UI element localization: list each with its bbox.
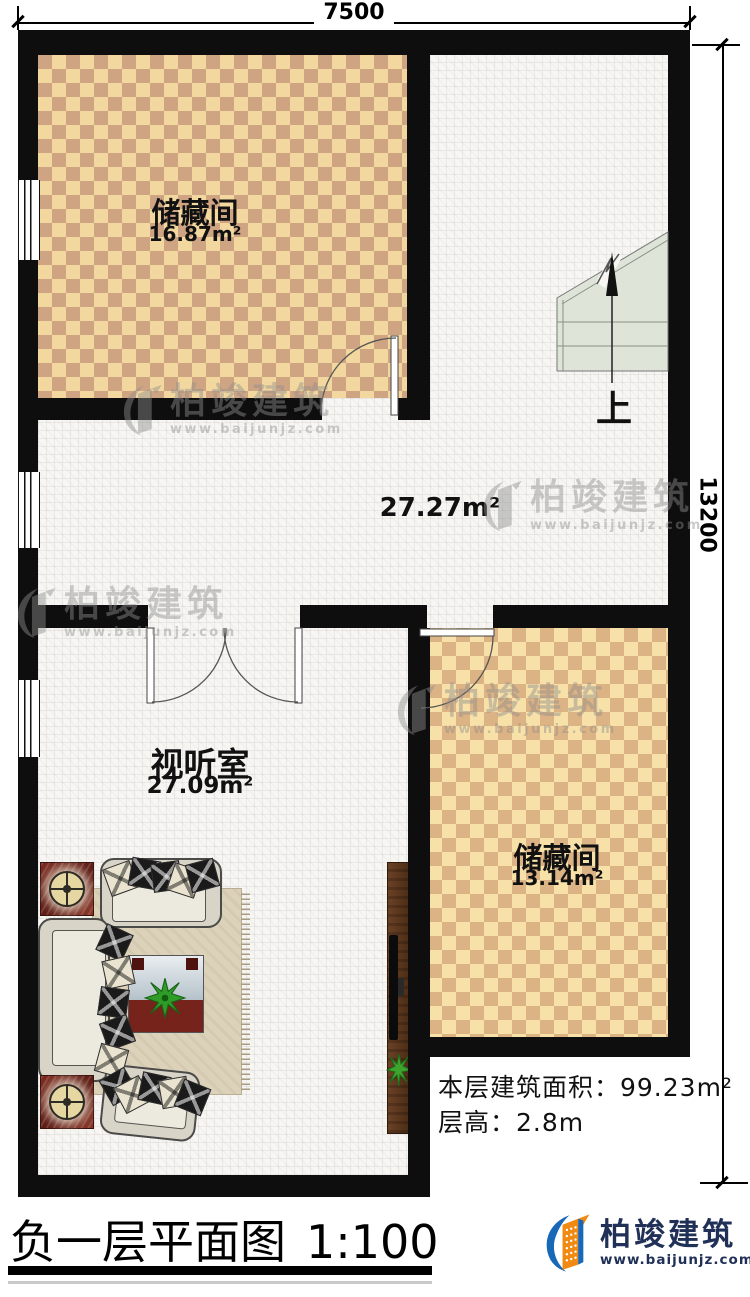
brand-url: www.baijunjz.com [600, 1252, 750, 1268]
watermark-url: www.baijunjz.com [444, 722, 617, 737]
watermark: 柏竣建筑 www.baijunjz.com [12, 585, 237, 641]
drawing-title: 负一层平面图 1:100 [10, 1206, 439, 1272]
side-table [40, 1075, 94, 1129]
title-underline [8, 1266, 432, 1275]
av-room-area: 27.09m² [105, 773, 295, 799]
table-lamp [49, 1084, 85, 1120]
rug-fringe [241, 890, 250, 1091]
drawing-scale: 1:100 [306, 1215, 439, 1269]
tv [389, 935, 398, 1040]
wall-divider [493, 605, 668, 628]
wall-storage1-bottom [398, 398, 430, 420]
drawing-title-text: 负一层平面图 [10, 1206, 286, 1272]
window [18, 180, 40, 260]
watermark: 柏竣建筑 www.baijunjz.com [118, 382, 343, 438]
storage2-area: 13.14m² [472, 866, 642, 890]
watermark-logo-icon [118, 382, 164, 438]
watermark: 柏竣建筑 www.baijunjz.com [392, 682, 617, 738]
title-underline-thin [8, 1281, 432, 1284]
side-table [40, 862, 94, 916]
brand-logo-block: 柏竣建筑 www.baijunjz.com [540, 1212, 750, 1274]
storage1-area: 16.87m² [110, 222, 280, 246]
brand-name: 柏竣建筑 [600, 1218, 750, 1252]
stairs-up-label: 上 [594, 380, 634, 432]
wall-top [18, 30, 690, 55]
watermark-name: 柏竣建筑 [64, 587, 237, 623]
pillow [101, 955, 135, 989]
window [18, 680, 40, 757]
watermark-url: www.baijunjz.com [530, 518, 703, 533]
floor-plan-page: 储藏间 16.87m² 27.27m² 视听室 27.09m² 储藏间 13.1… [0, 0, 750, 1297]
wall-av-room-bottom [18, 1175, 430, 1197]
table-lamp [49, 871, 85, 907]
window [18, 472, 40, 548]
watermark-name: 柏竣建筑 [530, 480, 703, 516]
wall-right [668, 30, 690, 1057]
watermark-url: www.baijunjz.com [170, 422, 343, 437]
watermark-name: 柏竣建筑 [170, 384, 343, 420]
dimension-line-right [722, 44, 724, 1183]
coffee-table-corner [132, 958, 144, 970]
extension-line [692, 44, 740, 46]
wall-storage1-right [407, 30, 430, 420]
dimension-top-value: 7500 [314, 0, 394, 25]
wall-divider [300, 605, 427, 628]
watermark: 柏竣建筑 www.baijunjz.com [478, 478, 703, 534]
floor-area-text: 本层建筑面积：99.23m² [438, 1068, 733, 1104]
tv-mount [398, 978, 404, 996]
wall-storage2-bottom [408, 1037, 690, 1057]
floor-height-text: 层高：2.8m [438, 1103, 584, 1139]
brand-logo-icon [540, 1212, 592, 1274]
watermark-name: 柏竣建筑 [444, 684, 617, 720]
potted-plant [143, 976, 187, 1020]
coffee-table-corner [186, 958, 198, 970]
watermark-url: www.baijunjz.com [64, 625, 237, 640]
